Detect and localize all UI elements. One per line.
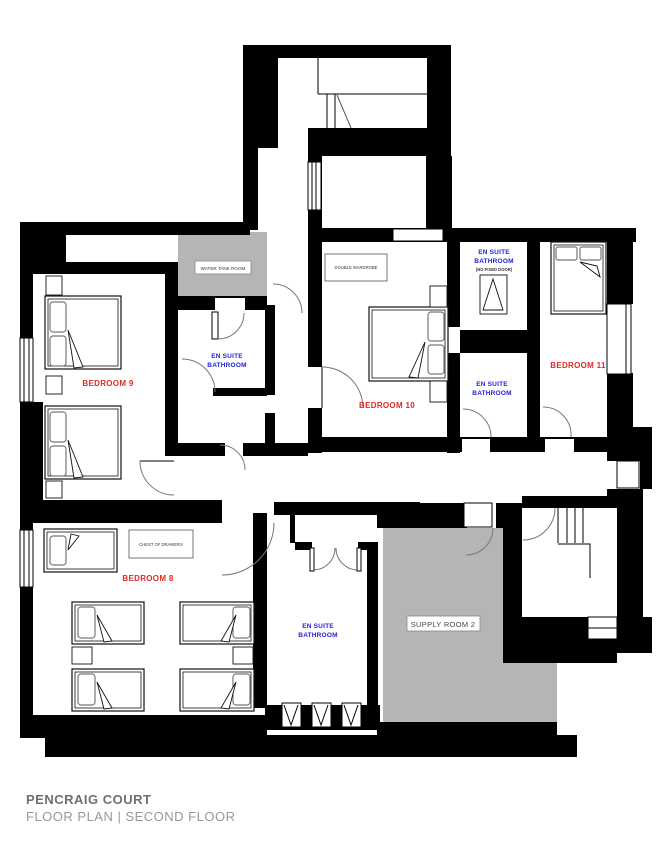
svg-text:BATHROOM: BATHROOM [472,390,511,397]
floor-plan-page: DOUBLE WARDROBE CHEST OF DRAWERS WATER T… [0,0,665,857]
stairs-bottom-right [558,508,590,578]
wardrobe-label: DOUBLE WARDROBE [335,265,378,270]
bed-single-1-bedroom8 [72,602,144,644]
svg-text:EN SUITE: EN SUITE [211,353,243,360]
window-bedroom10-top [393,229,443,241]
supply-room-label: SUPPLY ROOM 2 [411,620,475,629]
nightstand [72,647,92,664]
door-bedroom10 [322,367,363,408]
water-tank-label: WATER TANK ROOM [201,266,246,271]
stairs-top-tower [318,58,427,128]
bedroom-9-label: BEDROOM 9 [82,379,133,388]
nightstand [46,481,62,498]
shower-tray [480,275,507,314]
door-corridor-top [273,284,302,313]
bedroom-11-label: BEDROOM 11 [550,361,606,370]
walls [20,45,652,757]
window-tower [308,162,321,210]
casement-windows-bathroom8 [282,703,361,727]
bed-double-bedroom11 [551,242,606,314]
nightstand [430,381,447,402]
nightstand [46,276,62,295]
svg-text:EN SUITE: EN SUITE [302,623,334,630]
bed-single-3-bedroom8 [72,669,144,711]
bedroom-10-label: BEDROOM 10 [359,401,415,410]
window-bedroom9-left [20,338,33,402]
nightstand [430,286,447,307]
nightstand [233,647,253,664]
svg-text:BATHROOM: BATHROOM [474,258,513,265]
door-staircase [523,508,555,540]
door-ensuite8-double [310,548,361,571]
ensuite-8-label: EN SUITE BATHROOM [298,623,337,639]
bed-double-1-bedroom9 [45,296,121,369]
ensuite-10-label: EN SUITE BATHROOM (NO FIXED DOOR) [474,249,513,272]
plan-subtitle: FLOOR PLAN | SECOND FLOOR [26,809,235,824]
door-ensuite9-top [212,312,244,339]
chest-label: CHEST OF DRAWERS [139,542,183,547]
bed-double-2-bedroom9 [45,406,121,479]
door-bedroom9 [140,461,174,495]
bed-single-top-bedroom8 [44,529,117,572]
door-bedroom11 [543,407,571,437]
bed-single-4-bedroom8 [180,669,254,711]
bed-single-2-bedroom8 [180,602,254,644]
floor-plan-drawing: DOUBLE WARDROBE CHEST OF DRAWERS WATER T… [0,0,665,857]
bed-double-bedroom10 [369,307,448,381]
ensuite-9-label: EN SUITE BATHROOM [207,353,246,369]
bedroom-8-label: BEDROOM 8 [122,574,173,583]
svg-text:BATHROOM: BATHROOM [298,632,337,639]
window-under-stairs [588,617,617,639]
ensuite-11-label: EN SUITE BATHROOM [472,381,511,397]
nightstand [46,376,62,394]
svg-text:EN SUITE: EN SUITE [476,381,508,388]
window-bedroom8-left [20,530,33,587]
svg-text:BATHROOM: BATHROOM [207,362,246,369]
svg-text:(NO FIXED DOOR): (NO FIXED DOOR) [476,267,513,272]
plan-title: PENCRAIG COURT [26,792,151,807]
window-corridor-right [617,461,639,488]
window-bedroom11-right [607,304,631,374]
footer: PENCRAIG COURT FLOOR PLAN | SECOND FLOOR [26,792,235,824]
svg-text:EN SUITE: EN SUITE [478,249,510,256]
door-ensuite11 [463,409,491,437]
